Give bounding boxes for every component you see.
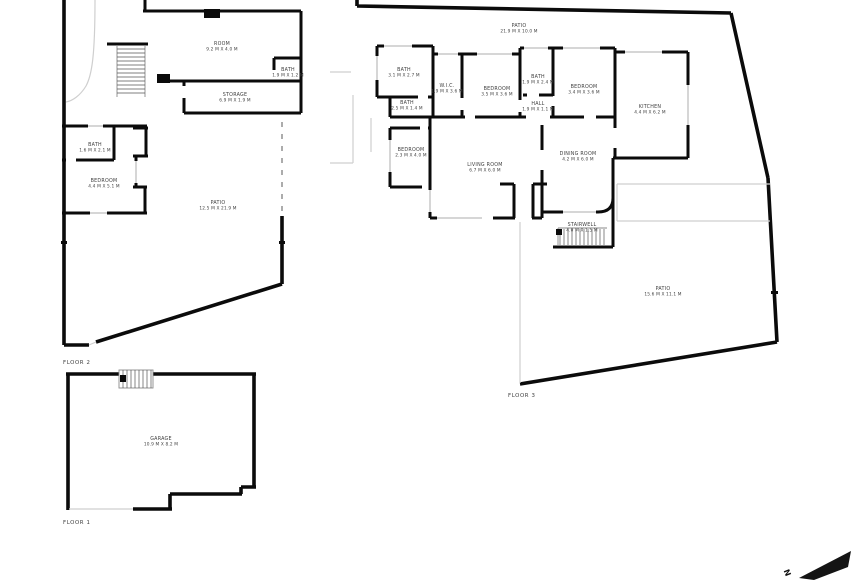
floor3-thin-lines	[330, 72, 770, 383]
room-label-bedroom: BEDROOM3.5 M X 3.6 M	[481, 86, 513, 98]
room-label-room: ROOM9.2 M X 4.0 M	[206, 41, 238, 53]
room-label-dining-room: DINING ROOM4.2 M X 6.0 M	[560, 151, 597, 163]
floor-2-labels: FLOOR 2ROOM9.2 M X 4.0 MBATH1.9 M X 1.2 …	[63, 41, 304, 366]
floor2-wall-tick-left	[61, 241, 67, 244]
room-label-hall: HALL1.9 M X 1.1 M	[522, 101, 554, 113]
floor-3-label: FLOOR 3	[508, 393, 536, 399]
floor-2-label: FLOOR 2	[63, 360, 91, 366]
room-label-bath: BATH1.9 M X 2.4 M	[522, 74, 554, 86]
floor2-staircase	[117, 45, 145, 97]
room-label-garage: GARAGE10.9 M X 8.2 M	[144, 436, 178, 448]
room-label-patio: PATIO21.9 M X 10.0 M	[500, 23, 537, 35]
floor-plan-page: FLOOR 2ROOM9.2 M X 4.0 MBATH1.9 M X 1.2 …	[0, 0, 851, 582]
room-label-stairwell: STAIRWELL4.0 M X 1.5 M	[566, 222, 598, 234]
floor-2-plan	[61, 0, 301, 345]
floor3-wall-tick	[771, 291, 778, 294]
floor-1-labels: FLOOR 1GARAGE10.9 M X 8.2 M	[63, 436, 178, 526]
room-label-bath: BATH1.9 M X 1.2 M	[272, 67, 304, 79]
floor2-patio-gap-line	[89, 342, 96, 345]
room-label-bath: BATH3.1 M X 2.7 M	[388, 67, 420, 79]
floor-1-label: FLOOR 1	[63, 520, 91, 526]
room-label-bath: BATH2.5 M X 1.4 M	[391, 100, 423, 112]
room-label-patio: PATIO12.5 M X 21.9 M	[199, 200, 236, 212]
room-label-bedroom: BEDROOM2.3 M X 4.0 M	[395, 147, 427, 159]
room-label-storage: STORAGE6.9 M X 1.9 M	[219, 92, 251, 104]
floor2-windows	[88, 126, 136, 213]
floor2-vent	[204, 9, 220, 18]
room-label-living-room: LIVING ROOM6.7 M X 6.0 M	[467, 162, 502, 174]
room-label-kitchen: KITCHEN4.4 M X 6.2 M	[634, 104, 666, 116]
room-label-patio: PATIO15.6 M X 11.1 M	[644, 286, 681, 298]
floor-3-plan	[330, 0, 778, 384]
north-label: N	[782, 568, 793, 578]
north-arrow-icon	[799, 551, 851, 580]
floor2-outer-walls	[64, 0, 282, 345]
room-label-bedroom: BEDROOM4.4 M X 5.1 M	[88, 178, 120, 190]
floor2-driveway-curve	[66, 0, 95, 102]
room-label-bath: BATH1.6 M X 2.1 M	[79, 142, 111, 154]
floor2-wall-tick-right	[279, 241, 285, 244]
floor2-wall-stub	[157, 74, 170, 83]
floor-plan-drawing: FLOOR 2ROOM9.2 M X 4.0 MBATH1.9 M X 1.2 …	[0, 0, 851, 582]
room-label-w-i-c-: W.I.C.1.9 M X 3.6 M	[431, 83, 463, 95]
room-label-bedroom: BEDROOM3.4 M X 3.6 M	[568, 84, 600, 96]
compass-north-indicator: N	[782, 551, 851, 580]
floor1-staircase	[119, 370, 153, 388]
floor3-patio-boundary	[357, 0, 777, 384]
